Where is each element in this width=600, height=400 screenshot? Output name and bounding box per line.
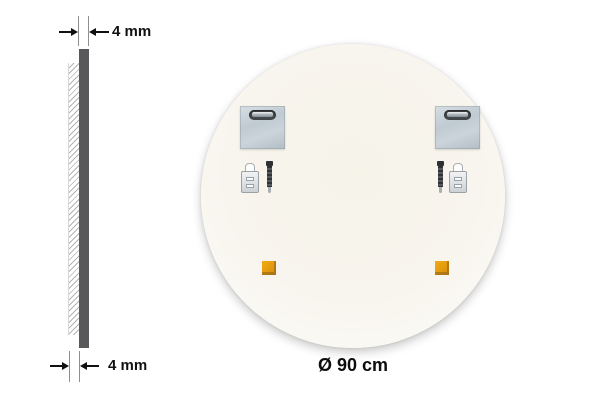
mirror-profile-bar — [79, 49, 89, 348]
dimension-arrow-shaft — [50, 365, 62, 367]
screw-left — [266, 161, 273, 193]
dimension-arrow-shaft — [96, 31, 109, 33]
screw-tip-icon — [268, 187, 271, 193]
screw-tip-icon — [439, 187, 442, 193]
keyhole-bar-icon — [252, 112, 273, 117]
arrow-right-icon — [71, 28, 78, 36]
keyhole-bar-icon — [447, 112, 468, 117]
dimension-extension-line — [78, 16, 79, 46]
screw-shaft-icon — [438, 166, 443, 187]
dimension-arrow-shaft — [87, 365, 99, 367]
arrow-left-icon — [89, 28, 96, 36]
screw-right — [437, 161, 444, 193]
plug-slot — [246, 184, 254, 188]
screw-shaft-icon — [267, 166, 272, 187]
wall-plug-right — [449, 171, 467, 193]
dimension-extension-line — [69, 351, 70, 382]
product-dimension-diagram: 4 mm 4 mm — [0, 0, 600, 400]
adhesive-pad-left — [262, 261, 276, 275]
hanging-bracket-right — [435, 106, 480, 149]
hanging-bracket-left — [240, 106, 285, 149]
diameter-label: Ø 90 cm — [201, 355, 505, 376]
arrow-left-icon — [80, 362, 87, 370]
plug-slot — [454, 184, 462, 188]
plug-slot — [246, 177, 254, 181]
keyhole-slot-icon — [249, 110, 276, 120]
adhesive-pad-right — [435, 261, 449, 275]
thickness-label-top: 4 mm — [112, 23, 151, 40]
arrow-right-icon — [62, 362, 69, 370]
keyhole-slot-icon — [444, 110, 471, 120]
plug-slot — [454, 177, 462, 181]
wall-plug-left — [241, 171, 259, 193]
mirror-back — [201, 44, 505, 348]
thickness-label-bottom: 4 mm — [108, 357, 147, 374]
